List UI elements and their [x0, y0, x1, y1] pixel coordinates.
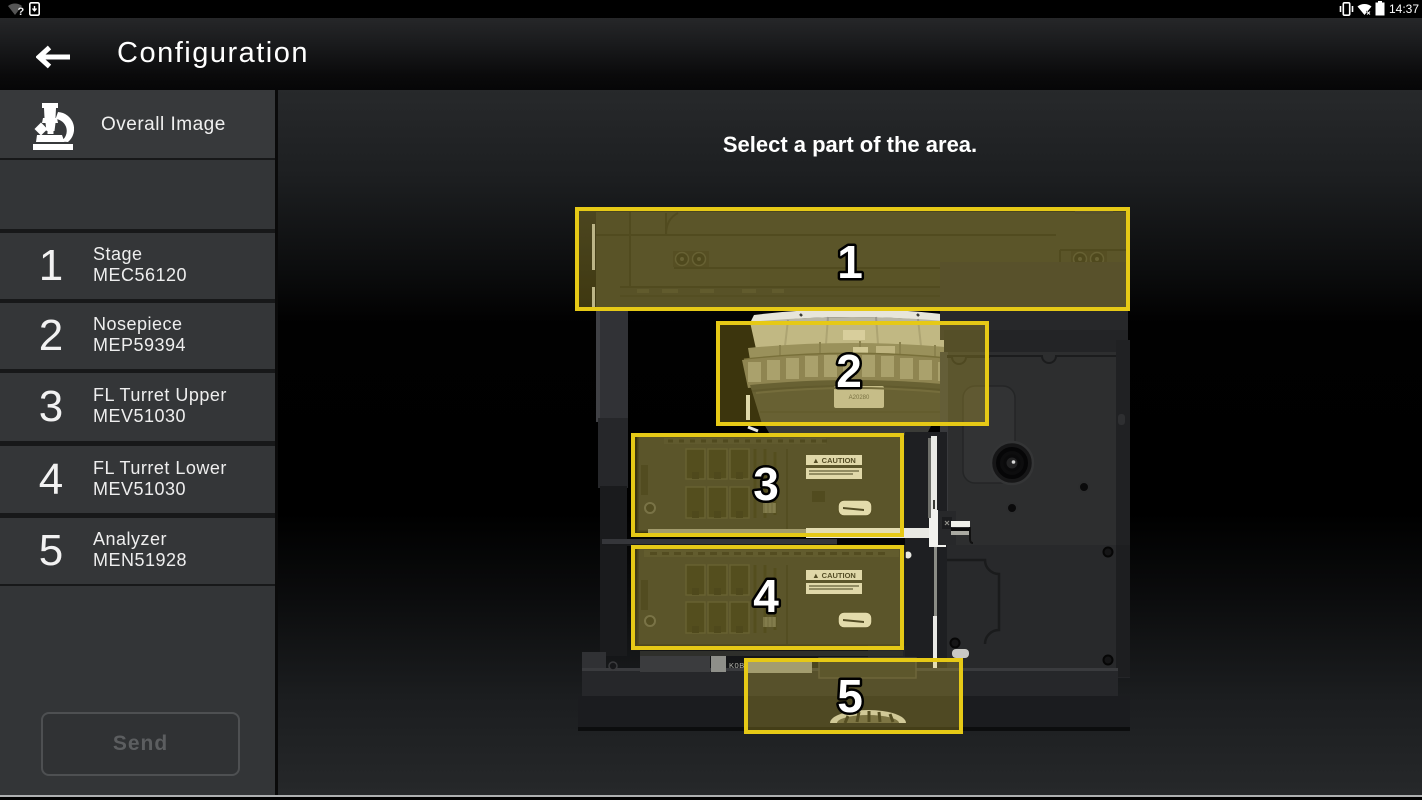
svg-text:1: 1: [837, 236, 863, 288]
svg-text:3: 3: [753, 458, 779, 510]
svg-text:5: 5: [837, 670, 863, 722]
svg-text:?: ?: [18, 6, 25, 16]
svg-text:4: 4: [753, 570, 779, 622]
svg-text:2: 2: [836, 345, 862, 397]
